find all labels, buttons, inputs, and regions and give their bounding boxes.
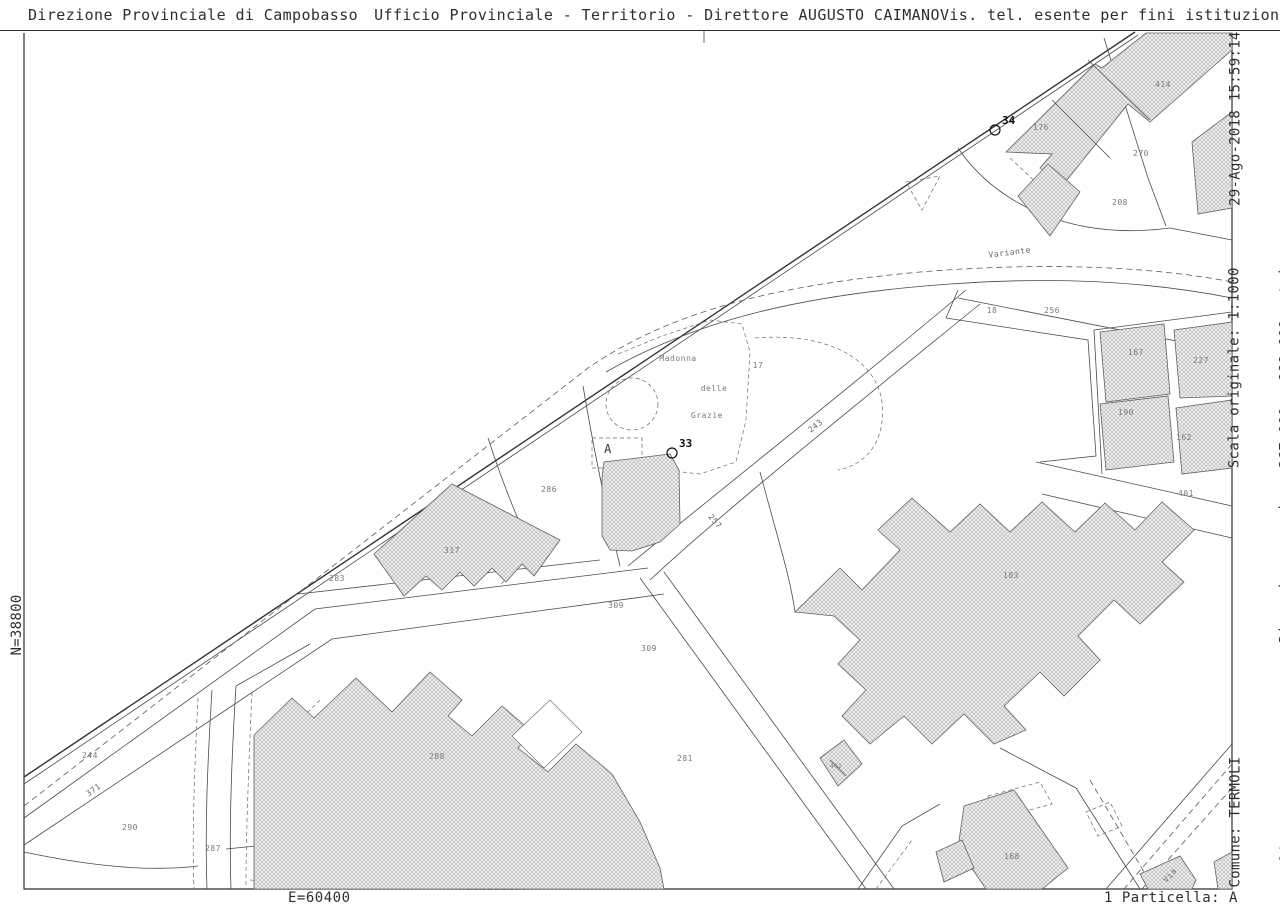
buildings	[254, 33, 1232, 889]
parcel-label-madonna: Madonna	[659, 354, 696, 363]
margin-comune-block: Comune: TERMOLI Foglio: 14	[1194, 757, 1280, 888]
parcel-label-208: 208	[1112, 198, 1128, 207]
parcel-label-270: 270	[1133, 149, 1149, 158]
building-168	[958, 790, 1068, 889]
margin-east-coordinate: E=60400	[288, 890, 351, 906]
fiducial-label-34: 34	[1002, 114, 1016, 127]
parcel-label-290: 290	[122, 823, 138, 832]
margin-particella: 1 Particella: A	[1104, 890, 1238, 906]
margin-date: 29-Ago-2018 15:59:14	[1228, 31, 1245, 214]
parcel-label-402: 402	[830, 763, 842, 770]
parcel-label-256: 256	[1044, 306, 1060, 315]
road-label-variante: Variante	[988, 245, 1031, 259]
margin-north-coordinate: N=38800	[0, 594, 43, 655]
building-190	[1100, 396, 1174, 470]
parcel-label-103: 103	[1003, 571, 1019, 580]
parcel-label-17: 17	[753, 361, 764, 370]
parcel-label-281: 281	[677, 754, 693, 763]
header-disclaimer: Vis. tel. esente per fini istituzionali	[940, 6, 1280, 24]
parcel-label-309: 309	[608, 601, 624, 610]
parcel-label-167: 167	[1128, 348, 1144, 357]
fiducial-point-33	[667, 448, 677, 458]
parcel-label-286: 286	[541, 485, 557, 494]
parcel-label-309: 309	[641, 644, 657, 653]
building-288	[254, 672, 664, 889]
building-317	[374, 484, 560, 596]
building-parcel-a	[602, 454, 680, 551]
margin-comune: Comune: TERMOLI	[1228, 757, 1245, 888]
header-office: Direzione Provinciale di Campobasso	[28, 6, 358, 24]
parcel-label-288: 288	[429, 752, 445, 761]
parcel-label-287: 287	[205, 844, 221, 853]
building-103	[795, 498, 1194, 744]
parcel-label-176: 176	[1033, 123, 1049, 132]
parcel-label-244: 244	[82, 751, 98, 760]
parcel-label-168: 168	[1004, 852, 1020, 861]
parcel-label-18: 18	[987, 306, 998, 315]
parcel-label-delle: delle	[701, 384, 728, 393]
margin-scale-block: Scala originale: 1:1000 Dimensione corni…	[1193, 267, 1280, 642]
parcel-label-a: A	[604, 442, 612, 456]
parcel-label-grazie: Grazie	[691, 411, 723, 420]
parcel-label-162: 162	[1176, 433, 1192, 442]
cadastral-map: 176414270208Variante18256167227190162Mad…	[0, 0, 1280, 916]
header-bar: Direzione Provinciale di Campobasso Uffi…	[0, 0, 1280, 31]
parcel-label-414: 414	[1155, 80, 1171, 89]
parcel-label-317: 317	[444, 546, 460, 555]
parcel-label-283: 283	[329, 574, 345, 583]
header-left-group: Direzione Provinciale di Campobasso Uffi…	[28, 6, 940, 24]
margin-protocol-block: 29-Ago-2018 15:59:14 Prot. n. T157777/20…	[1194, 31, 1280, 214]
fiducial-label-33: 33	[679, 437, 692, 450]
road-label-243: 243	[806, 418, 824, 435]
margin-scale: Scala originale: 1:1000	[1227, 267, 1244, 642]
header-department: Ufficio Provinciale - Territorio - Diret…	[374, 6, 940, 24]
building-167	[1100, 324, 1170, 402]
parcel-label-190: 190	[1118, 408, 1134, 417]
road-label-371: 371	[84, 782, 102, 799]
